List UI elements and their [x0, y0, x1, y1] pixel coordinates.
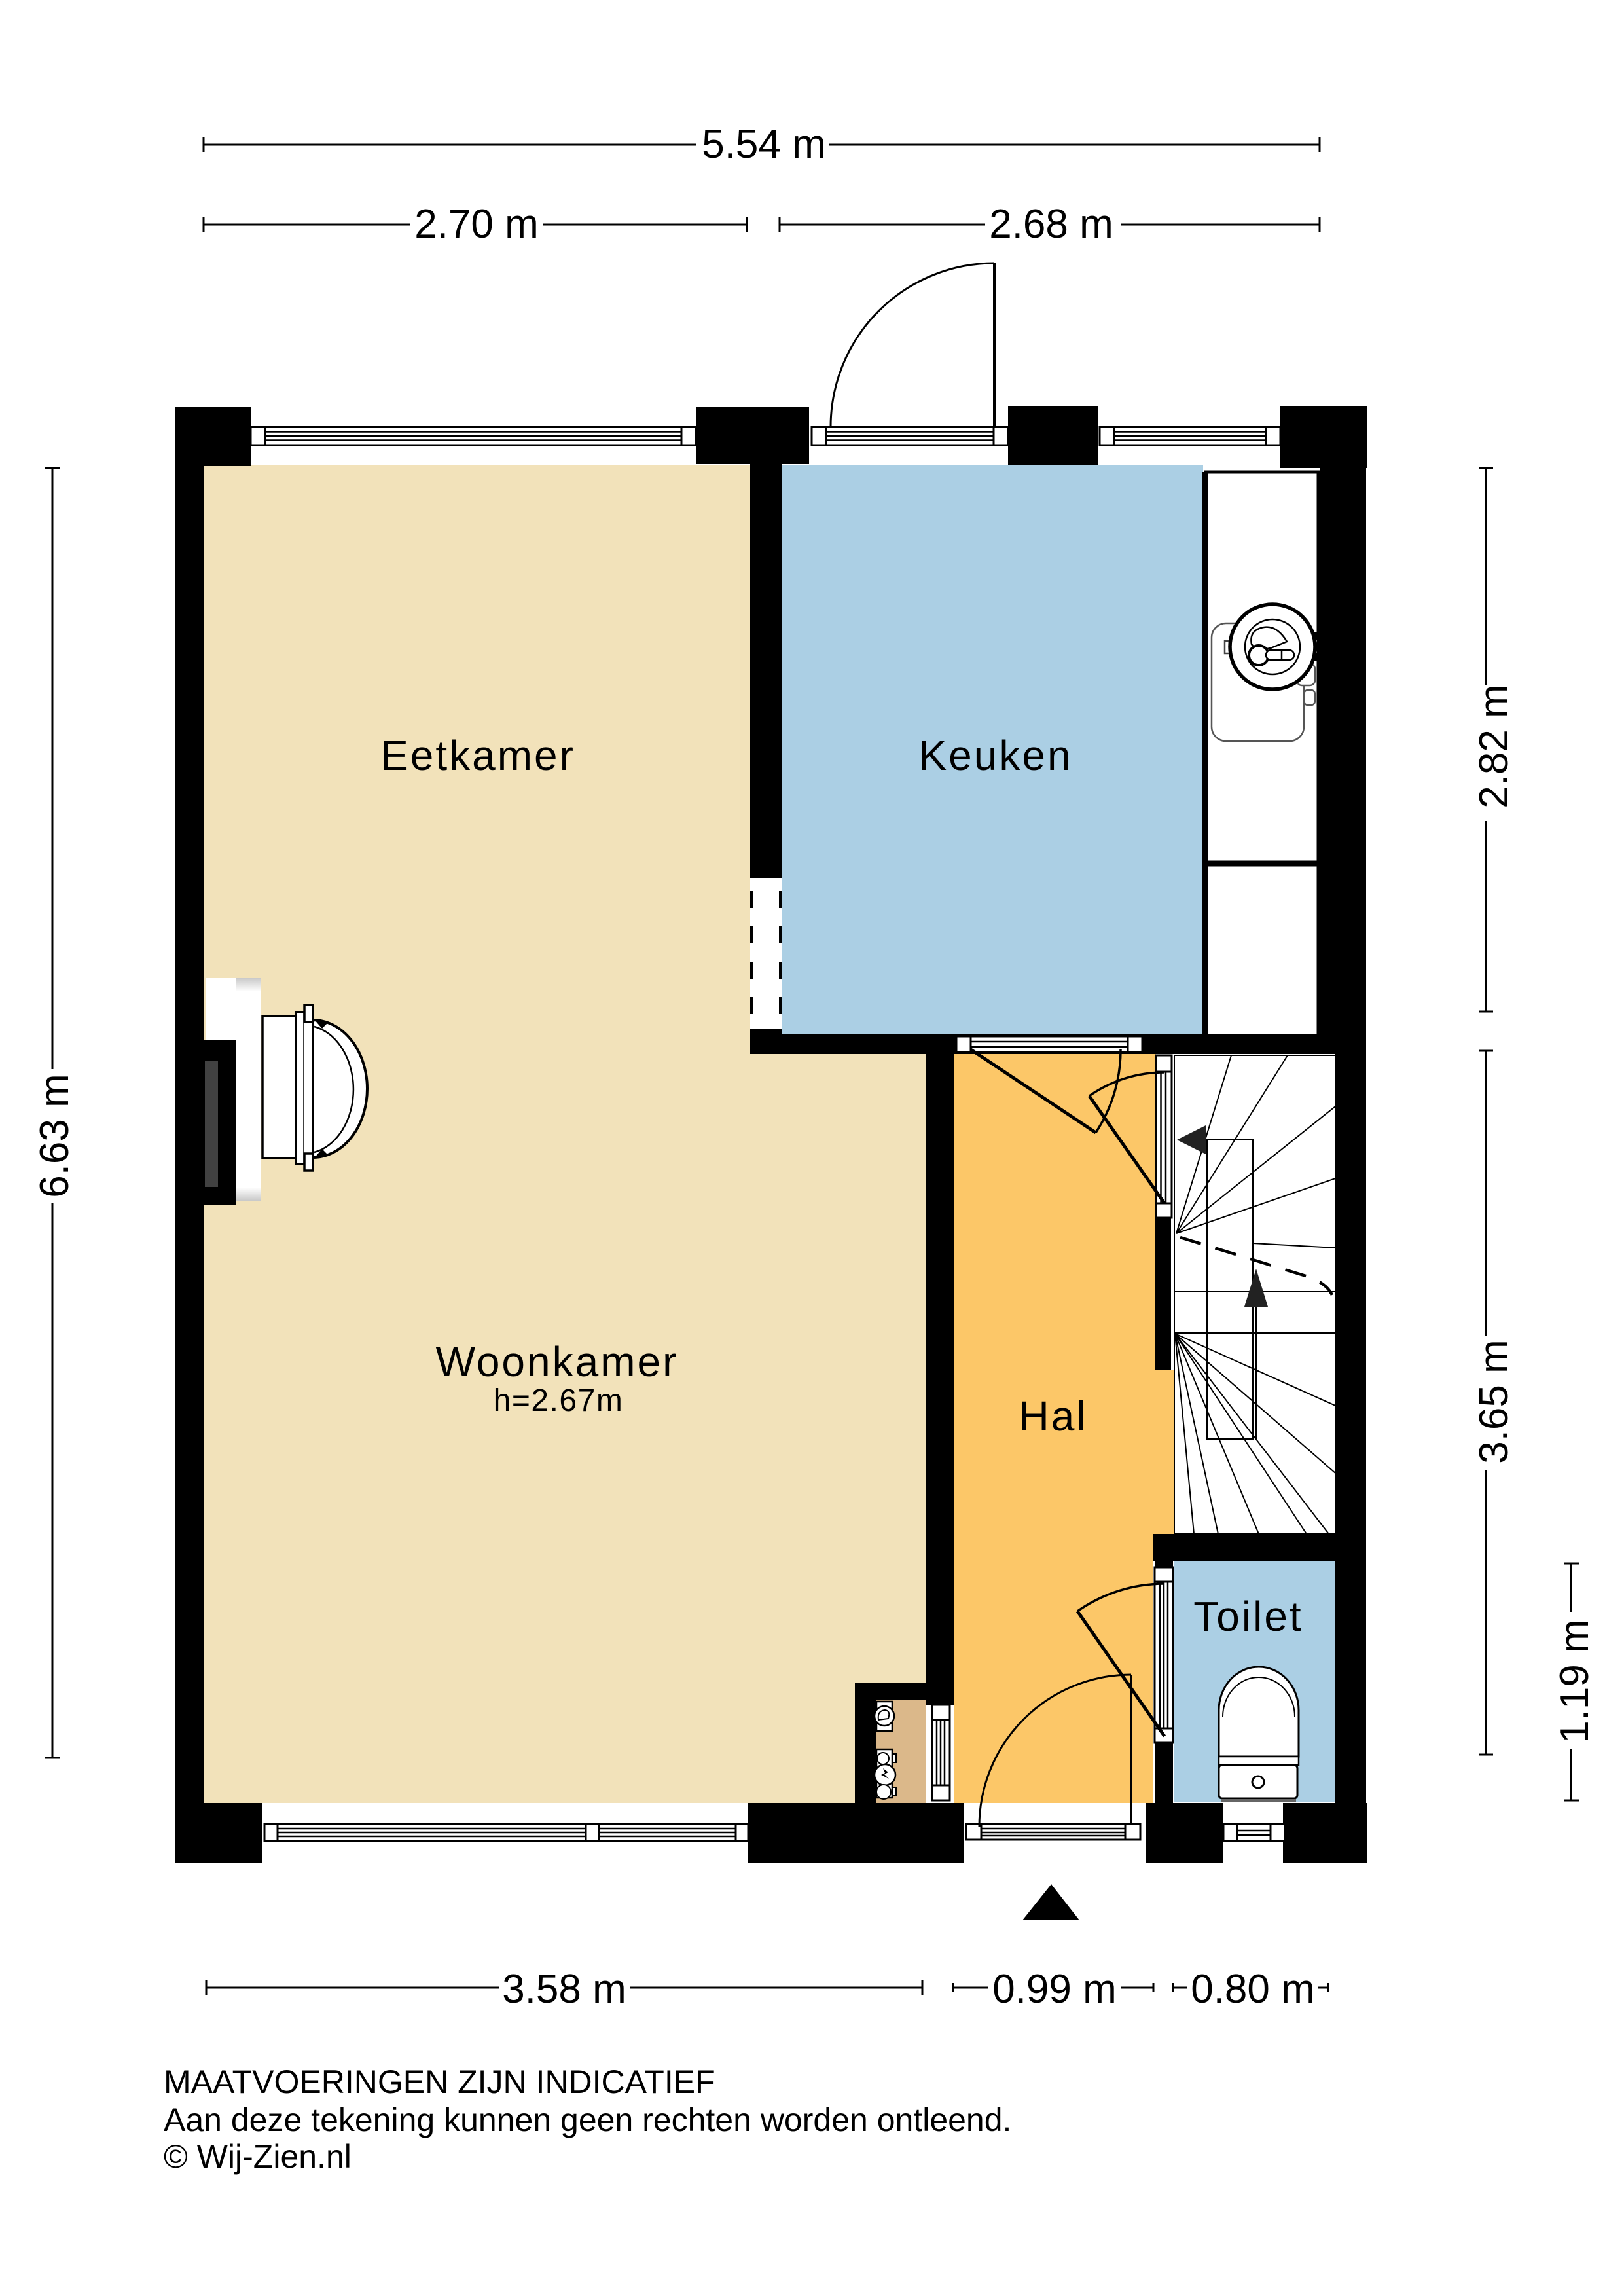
- svg-text:MAATVOERINGEN ZIJN INDICATIEF: MAATVOERINGEN ZIJN INDICATIEF: [164, 2064, 715, 2100]
- svg-text:2.68 m: 2.68 m: [989, 202, 1113, 247]
- svg-text:2.70 m: 2.70 m: [414, 202, 539, 247]
- svg-text:3.58 m: 3.58 m: [502, 1967, 626, 2012]
- svg-text:Aan deze tekening kunnen geen: Aan deze tekening kunnen geen rechten wo…: [164, 2102, 1011, 2138]
- svg-text:2.82 m: 2.82 m: [1471, 684, 1517, 809]
- svg-text:0.80 m: 0.80 m: [1191, 1967, 1315, 2012]
- svg-text:1.19 m: 1.19 m: [1552, 1619, 1597, 1743]
- svg-text:h=2.67m: h=2.67m: [494, 1383, 624, 1418]
- svg-text:6.63 m: 6.63 m: [32, 1074, 77, 1198]
- svg-text:Hal: Hal: [1019, 1393, 1087, 1440]
- svg-text:5.54 m: 5.54 m: [702, 122, 826, 167]
- svg-text:0.99 m: 0.99 m: [992, 1967, 1117, 2012]
- svg-text:Woonkamer: Woonkamer: [436, 1338, 679, 1385]
- svg-text:Keuken: Keuken: [918, 732, 1072, 779]
- svg-text:Eetkamer: Eetkamer: [380, 732, 575, 779]
- svg-text:Toilet: Toilet: [1193, 1593, 1303, 1640]
- svg-text:© Wij-Zien.nl: © Wij-Zien.nl: [164, 2138, 352, 2175]
- svg-text:3.65 m: 3.65 m: [1471, 1339, 1517, 1464]
